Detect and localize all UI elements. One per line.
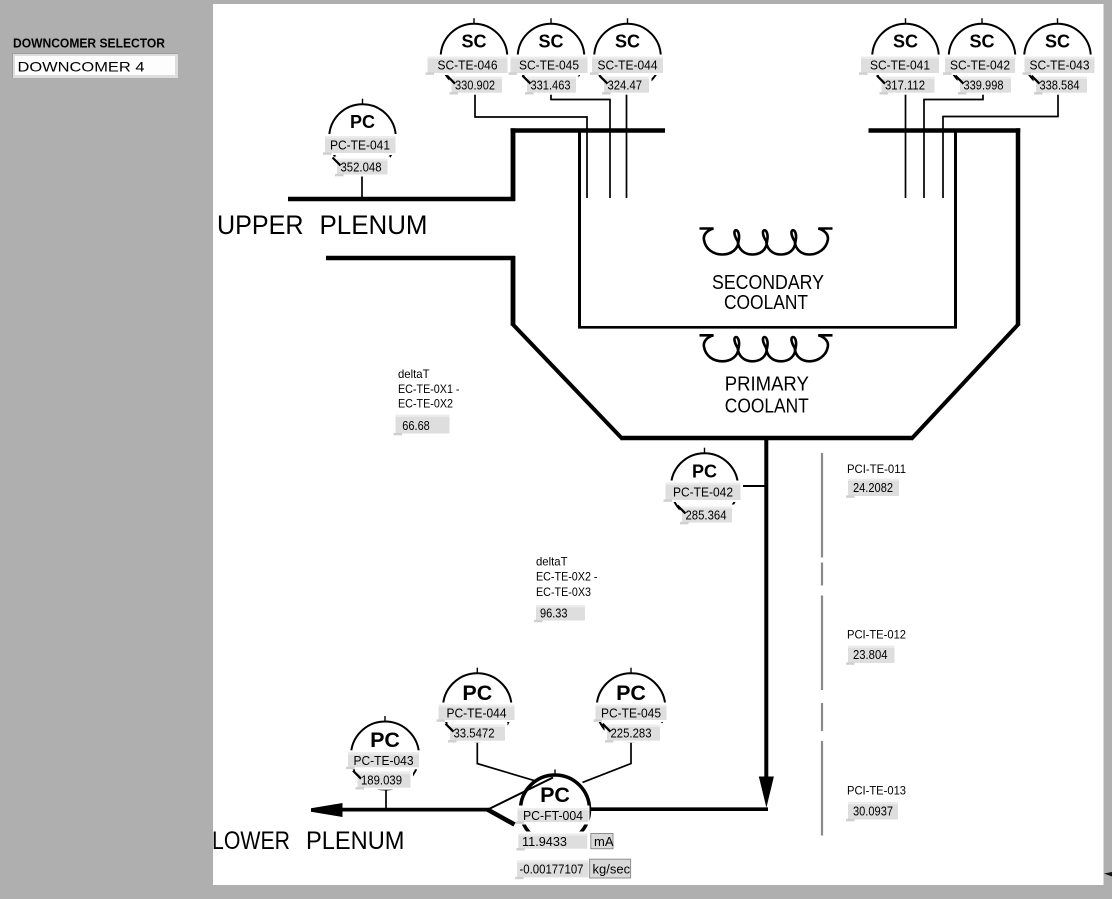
svg-text:PC-TE-044: PC-TE-044 [447, 705, 507, 720]
svg-text:285.364: 285.364 [686, 508, 727, 522]
svg-text:EC-TE-0X2 -: EC-TE-0X2 - [536, 570, 598, 584]
svg-text:SC: SC [1045, 32, 1070, 52]
svg-text:11.9433: 11.9433 [522, 835, 567, 849]
svg-text:SC: SC [538, 32, 563, 52]
svg-text:PLENUM: PLENUM [320, 210, 428, 240]
svg-text:deltaT: deltaT [536, 555, 568, 569]
svg-text:339.998: 339.998 [964, 79, 1004, 93]
svg-text:PC-TE-043: PC-TE-043 [354, 753, 414, 768]
svg-text:PLENUM: PLENUM [306, 827, 405, 855]
svg-text:kg/sec: kg/sec [593, 862, 631, 877]
svg-text:225.283: 225.283 [611, 727, 652, 741]
svg-text:324.47: 324.47 [608, 79, 643, 93]
svg-text:33.5472: 33.5472 [454, 727, 495, 741]
svg-text:-0.00177107: -0.00177107 [520, 863, 584, 877]
svg-text:SC-TE-044: SC-TE-044 [598, 58, 658, 73]
svg-text:PC: PC [462, 681, 492, 705]
svg-text:COOLANT: COOLANT [725, 395, 809, 418]
svg-text:24.2082: 24.2082 [853, 481, 893, 495]
svg-text:PC-TE-045: PC-TE-045 [601, 705, 661, 720]
svg-text:DOWNCOMER 4: DOWNCOMER 4 [18, 59, 145, 75]
svg-text:23.804: 23.804 [853, 648, 888, 662]
svg-text:PCI-TE-011: PCI-TE-011 [847, 462, 906, 476]
svg-text:66.68: 66.68 [402, 419, 430, 433]
svg-text:EC-TE-0X1 -: EC-TE-0X1 - [398, 382, 460, 396]
svg-text:SC: SC [969, 32, 994, 52]
svg-text:352.048: 352.048 [341, 160, 382, 174]
svg-text:LOWER: LOWER [212, 827, 290, 855]
svg-text:PC: PC [540, 783, 570, 807]
svg-text:EC-TE-0X3: EC-TE-0X3 [536, 585, 591, 599]
svg-text:PC-FT-004: PC-FT-004 [523, 808, 583, 823]
svg-text:PC: PC [616, 681, 646, 705]
svg-text:SC-TE-045: SC-TE-045 [519, 58, 579, 73]
svg-text:30.0937: 30.0937 [853, 805, 893, 819]
svg-text:189.039: 189.039 [361, 774, 402, 788]
svg-text:SC-TE-046: SC-TE-046 [438, 58, 498, 73]
svg-text:PC-TE-042: PC-TE-042 [673, 485, 733, 500]
svg-text:COOLANT: COOLANT [724, 291, 808, 314]
svg-text:PCI-TE-012: PCI-TE-012 [847, 628, 906, 642]
svg-text:SC: SC [461, 32, 486, 52]
svg-text:SC-TE-041: SC-TE-041 [870, 58, 930, 73]
svg-text:SC-TE-042: SC-TE-042 [950, 58, 1010, 73]
svg-text:deltaT: deltaT [398, 367, 430, 381]
svg-text:SC: SC [615, 32, 640, 52]
svg-text:PRIMARY: PRIMARY [725, 373, 809, 396]
svg-text:PCI-TE-013: PCI-TE-013 [847, 784, 906, 798]
svg-text:338.584: 338.584 [1040, 79, 1080, 93]
svg-text:317.112: 317.112 [885, 79, 925, 93]
svg-text:UPPER: UPPER [217, 210, 304, 240]
svg-text:SC-TE-043: SC-TE-043 [1030, 58, 1090, 73]
svg-text:PC: PC [350, 112, 375, 132]
svg-text:PC-TE-041: PC-TE-041 [330, 138, 390, 153]
svg-text:PC: PC [370, 728, 400, 752]
svg-text:PC: PC [692, 462, 717, 482]
svg-text:DOWNCOMER SELECTOR: DOWNCOMER SELECTOR [13, 37, 165, 51]
svg-text:EC-TE-0X2: EC-TE-0X2 [398, 397, 453, 411]
svg-text:331.463: 331.463 [531, 79, 571, 93]
svg-text:96.33: 96.33 [540, 607, 568, 621]
svg-text:330.902: 330.902 [455, 79, 495, 93]
svg-text:mA: mA [594, 834, 614, 849]
svg-text:SC: SC [893, 32, 918, 52]
